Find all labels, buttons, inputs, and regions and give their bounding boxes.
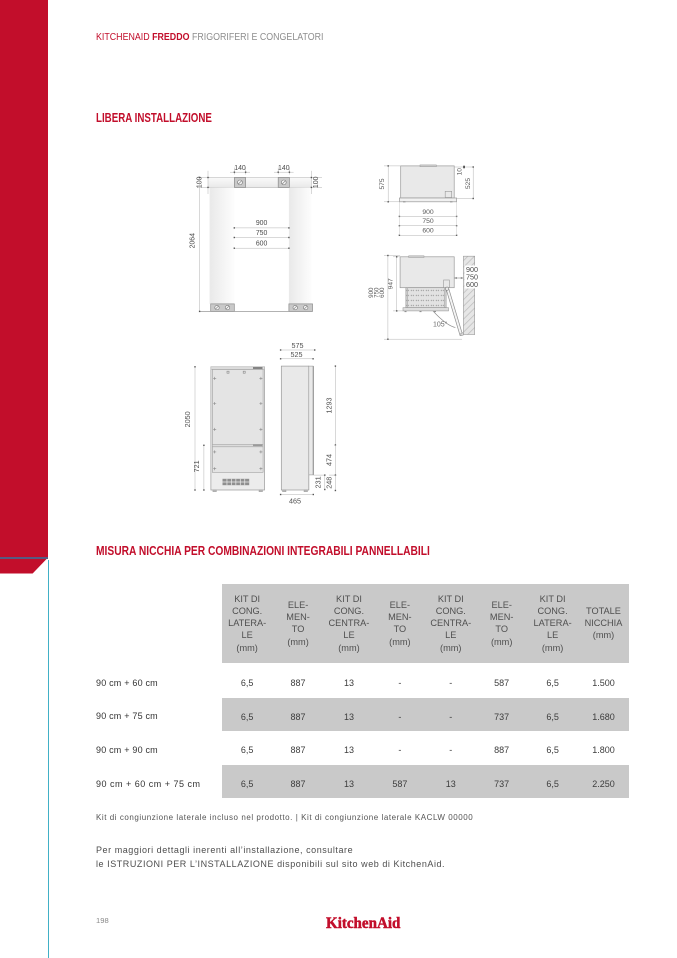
svg-text:465: 465	[289, 497, 301, 506]
svg-text:575: 575	[379, 178, 386, 189]
svg-text:140: 140	[278, 165, 290, 172]
svg-text:474: 474	[324, 454, 333, 466]
svg-text:100: 100	[313, 176, 320, 188]
svg-text:140: 140	[234, 165, 246, 172]
svg-text:900: 900	[422, 209, 434, 216]
svg-text:900: 900	[256, 220, 268, 227]
svg-text:525: 525	[465, 178, 472, 189]
svg-text:2064: 2064	[190, 233, 197, 248]
svg-text:750: 750	[422, 218, 434, 225]
svg-text:248: 248	[324, 477, 333, 489]
svg-text:575: 575	[292, 341, 304, 350]
svg-text:600: 600	[466, 280, 478, 289]
svg-text:947: 947	[388, 278, 395, 289]
svg-text:10: 10	[456, 168, 463, 176]
svg-text:231: 231	[314, 476, 323, 488]
svg-text:1293: 1293	[324, 398, 333, 414]
svg-text:600: 600	[379, 287, 386, 298]
svg-text:525: 525	[291, 350, 303, 359]
svg-text:105°: 105°	[433, 321, 448, 329]
svg-text:600: 600	[256, 241, 268, 248]
svg-text:721: 721	[192, 460, 201, 472]
svg-text:750: 750	[256, 230, 268, 237]
svg-text:600: 600	[422, 228, 434, 235]
svg-text:2050: 2050	[185, 411, 192, 427]
